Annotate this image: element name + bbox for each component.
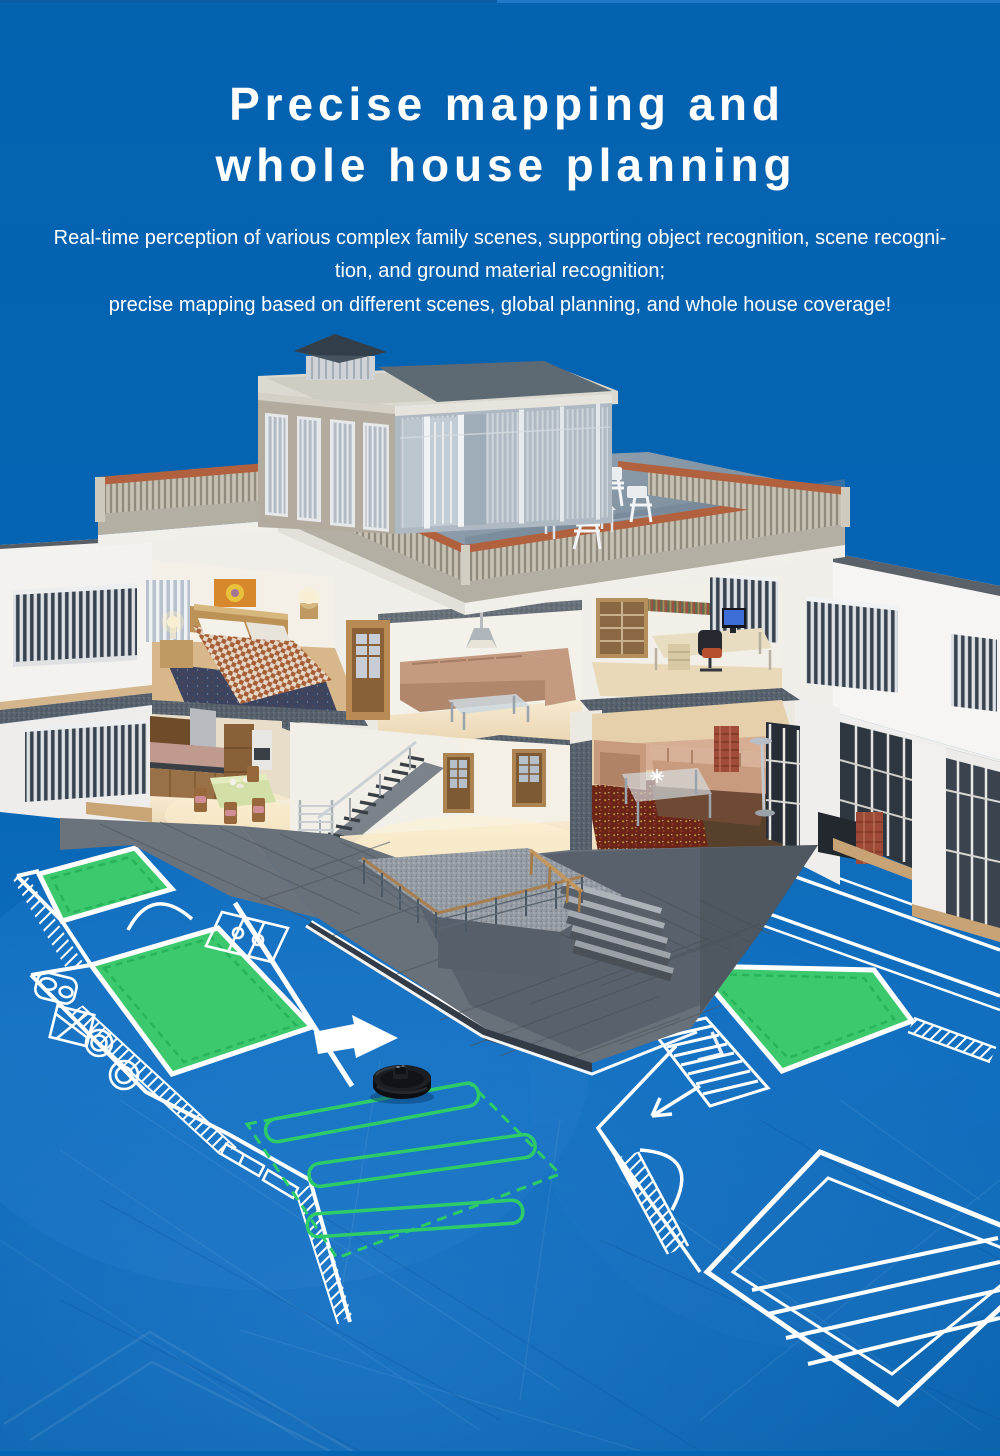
svg-text:precise mapping based on diffe: precise mapping based on different scene… (109, 294, 891, 316)
svg-text:Precise mapping and: Precise mapping and (229, 78, 785, 130)
svg-text:whole house planning: whole house planning (215, 139, 797, 191)
svg-text:tion, and ground material reco: tion, and ground material recognition; (335, 260, 665, 282)
svg-text:Real-time perception of variou: Real-time perception of various complex … (54, 227, 947, 249)
